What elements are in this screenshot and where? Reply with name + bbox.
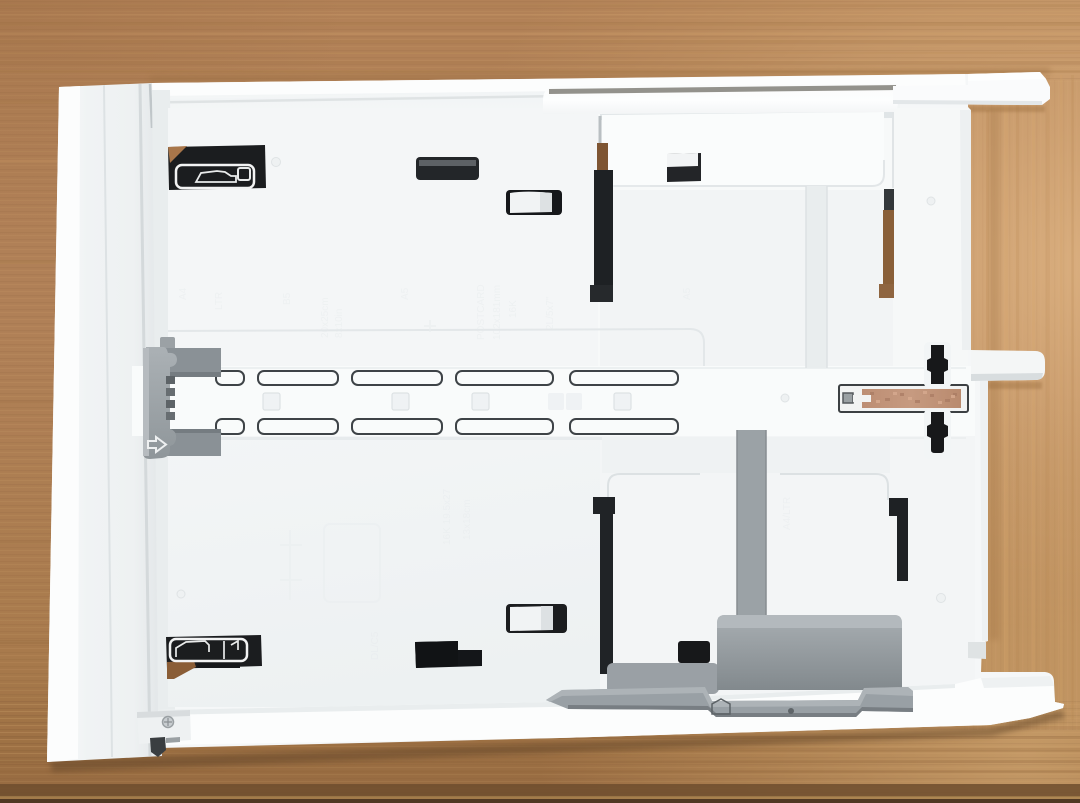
svg-text:A4/LTR: A4/LTR: [782, 497, 793, 530]
svg-text:A4: A4: [178, 287, 189, 300]
svg-text:102x181mm: 102x181mm: [492, 285, 503, 340]
svg-text:B5: B5: [282, 292, 293, 305]
svg-text:DL/C5: DL/C5: [370, 631, 381, 660]
svg-text:8x10in: 8x10in: [334, 309, 345, 338]
svg-text:2L/5x7": 2L/5x7": [545, 296, 556, 330]
svg-text:LTR: LTR: [214, 292, 225, 310]
svg-text:A5: A5: [682, 287, 693, 300]
svg-text:20x25cm: 20x25cm: [320, 297, 331, 338]
svg-text:16K 19.5x27: 16K 19.5x27: [442, 488, 453, 545]
svg-text:13x18cm: 13x18cm: [462, 499, 473, 540]
svg-text:16K: 16K: [508, 300, 519, 318]
svg-text:POSTCARD: POSTCARD: [476, 284, 487, 340]
svg-text:A5: A5: [400, 287, 411, 300]
